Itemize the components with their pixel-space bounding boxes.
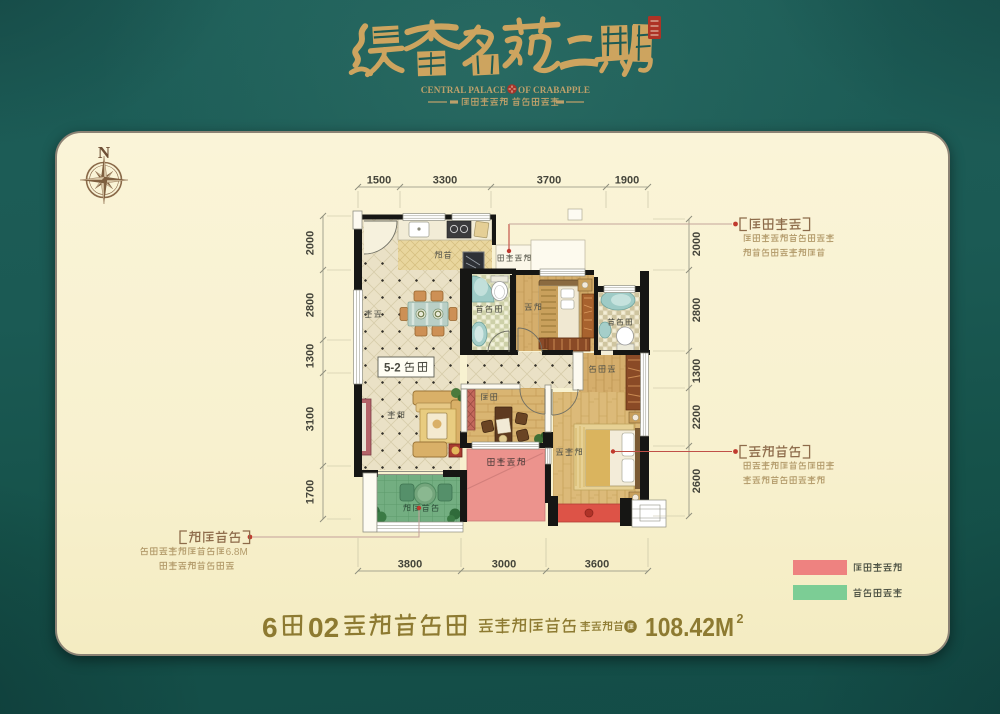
svg-text:2000: 2000	[691, 232, 703, 256]
svg-text:3300: 3300	[433, 175, 457, 187]
svg-text:1900: 1900	[615, 175, 639, 187]
svg-text:2200: 2200	[691, 405, 703, 429]
svg-text:1500: 1500	[367, 175, 391, 187]
svg-text:3700: 3700	[537, 175, 561, 187]
svg-text:3100: 3100	[305, 407, 317, 431]
svg-text:108.42M: 108.42M	[645, 614, 734, 642]
svg-text:2800: 2800	[691, 298, 703, 322]
svg-text:CENTRAL PALACE: CENTRAL PALACE	[421, 85, 506, 95]
svg-text:2600: 2600	[691, 469, 703, 493]
svg-text:3600: 3600	[585, 559, 609, 571]
svg-text:02: 02	[308, 612, 339, 643]
svg-text:1700: 1700	[305, 480, 317, 504]
svg-text:5-2: 5-2	[384, 363, 401, 375]
svg-text:1300: 1300	[691, 359, 703, 383]
svg-text:3800: 3800	[398, 559, 422, 571]
svg-text:1300: 1300	[305, 344, 317, 368]
svg-text:2000: 2000	[305, 231, 317, 255]
svg-text:OF CRABAPPLE: OF CRABAPPLE	[518, 85, 590, 95]
svg-text:2: 2	[737, 612, 744, 626]
svg-text:2800: 2800	[305, 293, 317, 317]
svg-text:6: 6	[262, 612, 278, 643]
svg-text:3000: 3000	[492, 559, 516, 571]
svg-text:6.8M: 6.8M	[226, 547, 248, 558]
svg-text:N: N	[98, 143, 111, 162]
